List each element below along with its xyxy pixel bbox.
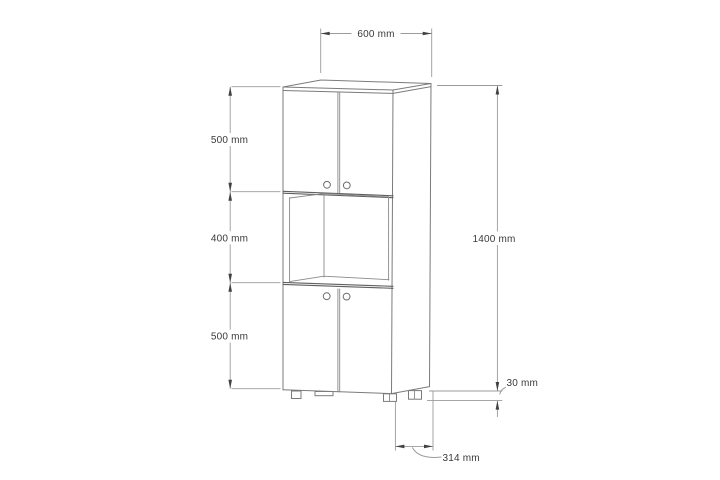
front-right-foot — [384, 394, 397, 402]
upper-door-divider — [338, 93, 340, 194]
width-label: 600 mm — [357, 29, 394, 40]
lower-left-door-knob — [323, 293, 330, 300]
arrow-down-icon — [496, 382, 500, 391]
cabinet-body-edges — [283, 84, 431, 394]
arrow-up-icon — [496, 401, 500, 410]
back-left-foot — [315, 392, 333, 396]
foot-label-leader — [500, 388, 506, 395]
cabinet-bottom-edge — [283, 387, 430, 394]
middle-section-label: 400 mm — [211, 233, 248, 244]
feet-detail-lines — [390, 391, 415, 402]
cabinet-dimension-diagram: 600 mm 500 mm 400 mm 500 mm 1400 mm 30 m… — [0, 0, 720, 480]
arrow-up-icon — [228, 283, 232, 292]
lower-doors — [283, 282, 430, 393]
depth-label: 314 mm — [443, 453, 480, 464]
arrow-right-icon — [423, 32, 432, 36]
cabinet-top-panel — [283, 80, 431, 93]
back-right-foot — [409, 391, 422, 400]
lower-section-top-edge — [283, 282, 393, 288]
dimension-depth: 314 mm — [395, 391, 479, 465]
arrow-up-icon — [496, 86, 500, 95]
arrow-left-icon — [395, 445, 404, 449]
height-label: 1400 mm — [472, 234, 515, 245]
arrow-down-icon — [228, 380, 232, 389]
dimension-left-stack: 500 mm 400 mm 500 mm — [208, 87, 281, 389]
dimension-foot-lines — [427, 401, 502, 417]
dimension-height: 1400 mm — [429, 86, 520, 392]
depth-label-leader — [413, 448, 442, 458]
bottom-section-label: 500 mm — [211, 332, 248, 343]
cabinet — [283, 80, 431, 401]
upper-right-door-knob — [343, 182, 350, 189]
lower-door-divider — [338, 289, 340, 392]
arrow-up-icon — [228, 192, 232, 201]
upper-doors — [283, 93, 393, 198]
middle-niche-lines — [290, 194, 389, 282]
arrow-down-icon — [228, 274, 232, 283]
arrow-down-icon — [228, 183, 232, 192]
arrow-right-icon — [424, 445, 433, 449]
upper-left-door-knob — [324, 181, 331, 188]
foot-label: 30 mm — [507, 378, 539, 389]
arrow-left-icon — [321, 32, 330, 36]
dimension-foot: 30 mm — [427, 378, 538, 417]
arrow-up-icon — [228, 87, 232, 96]
front-left-foot — [292, 391, 302, 399]
top-section-label: 500 mm — [211, 135, 248, 146]
lower-right-door-knob — [343, 293, 350, 300]
dimension-width: 600 mm — [321, 27, 432, 77]
